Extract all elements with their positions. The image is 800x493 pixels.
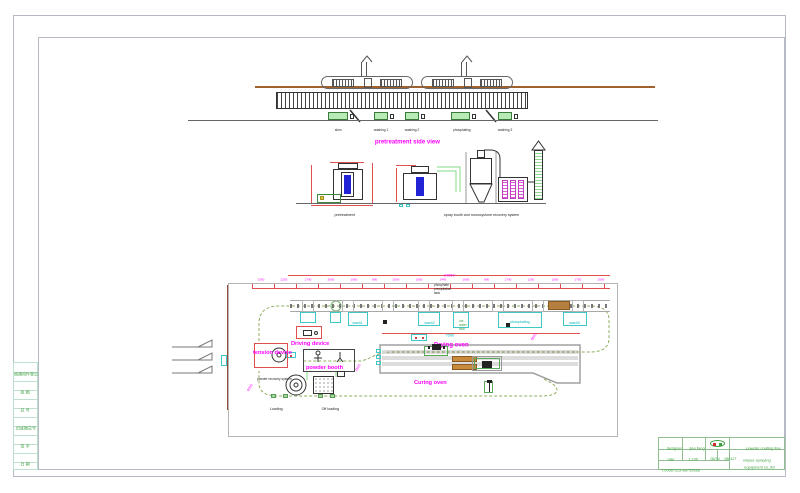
- trolley-stem: [489, 383, 490, 392]
- side-cell: [14, 363, 37, 372]
- section-left-label: pretreatment: [305, 207, 385, 225]
- run-support: [418, 300, 430, 312]
- loading-mark: [271, 394, 276, 398]
- booth-hood: [411, 166, 429, 173]
- duct-filter-left: [332, 79, 354, 87]
- tension-device-label: tension device: [253, 343, 309, 361]
- top-view-title: pretreatment side view: [347, 132, 467, 150]
- side-cell: [14, 399, 37, 408]
- duct-filter-right: [380, 79, 402, 87]
- section-right-label: spray booth and monocyclone recovery sys…: [398, 207, 538, 225]
- filter-cartridge: [510, 180, 516, 199]
- off-loading-label: Off loading: [310, 401, 350, 419]
- pump-mark: [390, 114, 394, 119]
- dim-line: [396, 168, 397, 202]
- section-flag: [506, 323, 510, 327]
- side-cell: 借通用件登记: [14, 372, 37, 381]
- fan-box: [364, 78, 372, 88]
- tank-washing2: [405, 112, 419, 120]
- workpiece-blue: [416, 177, 424, 196]
- side-cell: 总 号: [14, 408, 37, 417]
- logo-green-dot: [719, 443, 722, 446]
- exhaust-assembly-1: [321, 62, 413, 89]
- loading-label: Loading: [260, 401, 292, 419]
- pump-mark: [350, 114, 354, 119]
- pump-mark: [472, 114, 476, 119]
- exhaust-stack: [534, 150, 543, 200]
- run-support: [532, 300, 544, 312]
- oven-fan-2: [474, 358, 500, 369]
- filter-cartridge: [502, 180, 508, 199]
- loading-mark: [318, 394, 323, 398]
- segment-dims: 1500225017003000195080020001000144516008…: [252, 278, 610, 287]
- dim-line: [372, 163, 373, 203]
- pretreatment-tunnel: [276, 92, 528, 109]
- tank-phosphating: [451, 112, 470, 120]
- logo-red-dot: [713, 443, 716, 446]
- diag-dim-1: 4000: [246, 384, 264, 402]
- dim-line: [311, 165, 312, 203]
- cyan-door-mark: [221, 355, 227, 366]
- fan-motor: [482, 361, 492, 368]
- duct-filter-right: [480, 79, 502, 87]
- stack-pipe: [361, 62, 367, 76]
- label-wash1: wash1: [338, 315, 378, 333]
- cyclone-inlet: [477, 150, 485, 158]
- company-logo: [710, 440, 725, 447]
- diag-dim-3: 8500: [530, 333, 548, 351]
- curing-oven-label: Curing oven: [414, 373, 461, 391]
- label-wash3: wash3: [555, 315, 595, 333]
- section-flag: [383, 320, 387, 324]
- tank-washing3: [498, 112, 512, 120]
- loading-mark: [330, 394, 335, 398]
- oven-cap: [376, 349, 381, 353]
- side-cell: [14, 417, 37, 426]
- side-cell: 日 期: [14, 462, 37, 471]
- ground-line-mid: [296, 203, 546, 204]
- cyclone-body: [470, 158, 492, 184]
- label-phosphating-plan: phosphating: [498, 314, 542, 332]
- workpiece-blue: [344, 175, 351, 194]
- exhaust-assembly-2: [421, 62, 513, 89]
- stack-pipe: [461, 62, 467, 76]
- run-support: [342, 300, 354, 312]
- fan-motor: [432, 344, 441, 350]
- side-cell: [14, 435, 37, 444]
- recovery-filter-box: [313, 376, 334, 394]
- fan-flange: [443, 346, 445, 349]
- burner-mark: [320, 196, 324, 200]
- oven-bridge: [548, 301, 570, 310]
- ground-line-top: [188, 120, 658, 121]
- phone-number: T:0086-523-88759666: [661, 462, 739, 480]
- loading-mark: [283, 394, 288, 398]
- tank-skim: [328, 112, 348, 120]
- filter-cartridge: [518, 180, 524, 199]
- fan-box: [464, 78, 472, 88]
- oven-cap: [376, 355, 381, 359]
- company-line2: equipment co.,ltd: [729, 459, 785, 477]
- wall-line: [227, 285, 228, 410]
- exhaust-duct: [321, 76, 413, 89]
- run-support: [452, 300, 464, 312]
- diag-dim-2: 1500: [354, 364, 372, 382]
- run-support: [572, 300, 584, 312]
- side-cell: [14, 381, 37, 390]
- tank-washing1: [374, 112, 388, 120]
- oven-fan-1: [424, 346, 448, 356]
- plan-tank: [300, 312, 316, 323]
- run-support: [382, 300, 394, 312]
- title-block: designer jiao fang powder coating line r…: [658, 437, 785, 470]
- oven-cap: [376, 361, 381, 365]
- duct-filter-left: [432, 79, 454, 87]
- fan-flange: [428, 346, 430, 349]
- side-cell: 旧底图总号: [14, 426, 37, 435]
- side-cell: 签 字: [14, 444, 37, 453]
- run-support: [492, 300, 504, 312]
- exit-trolley: [484, 381, 493, 393]
- side-cell: 底 图: [14, 390, 37, 399]
- side-cell: [14, 453, 37, 462]
- label-washing3: washing 3: [485, 122, 525, 140]
- pump-mark: [514, 114, 518, 119]
- pump-mark: [421, 114, 425, 119]
- trolley-head: [487, 380, 492, 383]
- exhaust-duct: [421, 76, 513, 89]
- side-revision-column: 借通用件登记底 图总 号旧底图总号签 字日 期: [13, 362, 38, 470]
- dim-line: [311, 205, 373, 206]
- run-support: [302, 300, 314, 312]
- drawing-sheet: skim washing 1 washing 2 phosphating was…: [0, 0, 800, 493]
